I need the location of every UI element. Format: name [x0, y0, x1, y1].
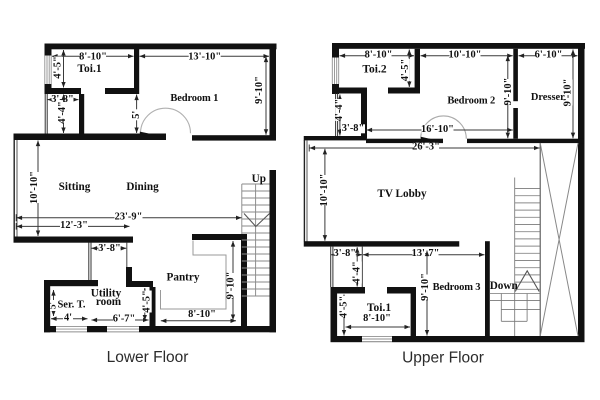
svg-text:Dining: Dining — [126, 181, 159, 193]
svg-text:10'-10": 10'-10" — [319, 174, 330, 207]
svg-text:4': 4' — [64, 312, 72, 323]
svg-text:13'-7": 13'-7" — [412, 248, 440, 259]
svg-text:4'-4": 4'-4" — [334, 99, 345, 122]
svg-text:4'-5": 4'-5" — [339, 296, 350, 319]
svg-text:Bedroom 3: Bedroom 3 — [433, 282, 481, 293]
svg-text:Toi.1: Toi.1 — [77, 63, 101, 75]
svg-text:8'-10": 8'-10" — [188, 309, 216, 320]
svg-text:6'-10": 6'-10" — [535, 49, 563, 60]
svg-text:23'-9": 23'-9" — [115, 211, 143, 222]
svg-text:16'-10": 16'-10" — [421, 124, 454, 135]
svg-text:Bedroom 1: Bedroom 1 — [170, 93, 218, 104]
svg-text:Pantry: Pantry — [167, 272, 200, 284]
svg-text:Ser. T.: Ser. T. — [57, 299, 85, 310]
svg-text:8'-10": 8'-10" — [79, 51, 107, 62]
svg-text:TV Lobby: TV Lobby — [377, 188, 427, 200]
svg-text:6'-7": 6'-7" — [113, 313, 136, 324]
svg-text:9'-10": 9'-10" — [503, 78, 514, 106]
svg-text:8'-10": 8'-10" — [365, 49, 393, 60]
svg-text:9'-10": 9'-10" — [226, 272, 237, 300]
svg-text:Lower Floor: Lower Floor — [107, 349, 189, 366]
svg-text:Sitting: Sitting — [59, 181, 91, 193]
svg-text:4'-5": 4'-5" — [142, 290, 153, 313]
svg-text:9'-10": 9'-10" — [254, 76, 265, 104]
svg-text:Down: Down — [490, 280, 519, 292]
svg-text:Dresser: Dresser — [531, 92, 565, 103]
svg-text:Toi.1: Toi.1 — [367, 302, 391, 314]
svg-text:Upper Floor: Upper Floor — [402, 350, 484, 367]
svg-text:12'-3": 12'-3" — [60, 220, 88, 231]
svg-text:4'-5": 4'-5" — [52, 56, 63, 79]
svg-text:9'-10": 9'-10" — [420, 273, 431, 301]
svg-text:26'-3": 26'-3" — [412, 142, 440, 153]
svg-text:3'-8": 3'-8" — [98, 243, 121, 254]
svg-text:Toi.2: Toi.2 — [362, 63, 386, 75]
svg-text:5': 5' — [131, 111, 142, 119]
svg-text:4'-4": 4'-4" — [352, 261, 363, 284]
svg-text:3'-8": 3'-8" — [342, 123, 365, 134]
svg-text:Up: Up — [252, 173, 266, 185]
svg-text:10'-10": 10'-10" — [449, 49, 482, 60]
svg-text:4'-5": 4'-5" — [400, 59, 411, 82]
svg-text:Bedroom 2: Bedroom 2 — [447, 95, 495, 106]
svg-text:4'-4": 4'-4" — [57, 101, 68, 124]
svg-text:3'-8": 3'-8" — [334, 248, 357, 259]
svg-text:13'-10": 13'-10" — [188, 52, 221, 63]
svg-text:room: room — [96, 296, 122, 308]
svg-text:8'-10": 8'-10" — [363, 313, 391, 324]
svg-text:10'-10": 10'-10" — [29, 171, 40, 204]
